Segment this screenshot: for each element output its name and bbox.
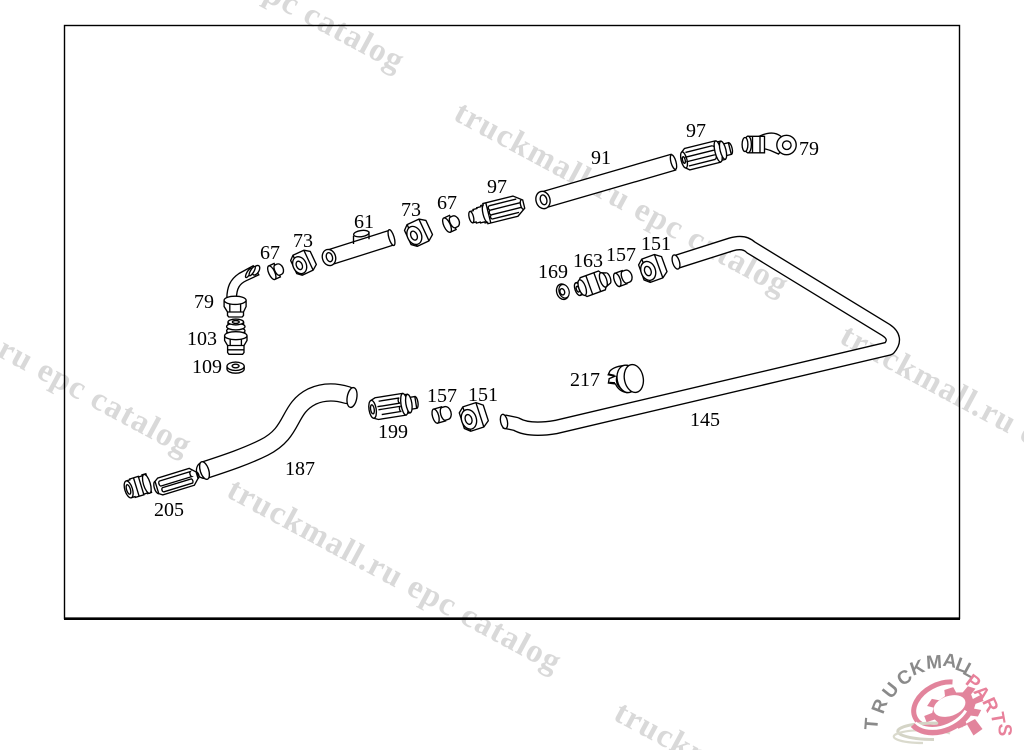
svg-text:79: 79 (194, 291, 214, 313)
svg-text:205: 205 (154, 499, 184, 521)
svg-text:T: T (861, 717, 883, 731)
svg-text:169: 169 (538, 261, 568, 283)
svg-text:109: 109 (192, 356, 222, 378)
svg-text:145: 145 (690, 409, 720, 431)
svg-text:151: 151 (641, 233, 671, 255)
svg-text:103: 103 (187, 328, 217, 350)
svg-text:M: M (926, 652, 943, 674)
svg-text:truckmall.ru epc catalog: truckmall.ru epc catalog (221, 471, 568, 680)
svg-text:73: 73 (401, 199, 421, 221)
svg-text:151: 151 (468, 384, 498, 406)
svg-text:73: 73 (293, 230, 313, 252)
svg-text:217: 217 (570, 369, 600, 391)
svg-text:67: 67 (437, 192, 457, 214)
svg-text:S: S (993, 723, 1014, 736)
svg-text:61: 61 (354, 211, 374, 233)
svg-text:67: 67 (260, 242, 280, 264)
svg-text:157: 157 (606, 244, 636, 266)
svg-text:79: 79 (799, 138, 819, 160)
svg-text:199: 199 (378, 421, 408, 443)
svg-text:157: 157 (427, 385, 457, 407)
svg-text:truckmall.ru epc catalog: truckmall.ru epc catalog (64, 0, 411, 80)
svg-text:97: 97 (487, 176, 507, 198)
svg-text:91: 91 (591, 147, 611, 169)
svg-text:163: 163 (573, 250, 603, 272)
svg-text:187: 187 (285, 458, 315, 480)
svg-text:truckmall.ru epc catalog: truckmall.ru epc catalog (0, 255, 198, 464)
svg-text:97: 97 (686, 120, 706, 142)
